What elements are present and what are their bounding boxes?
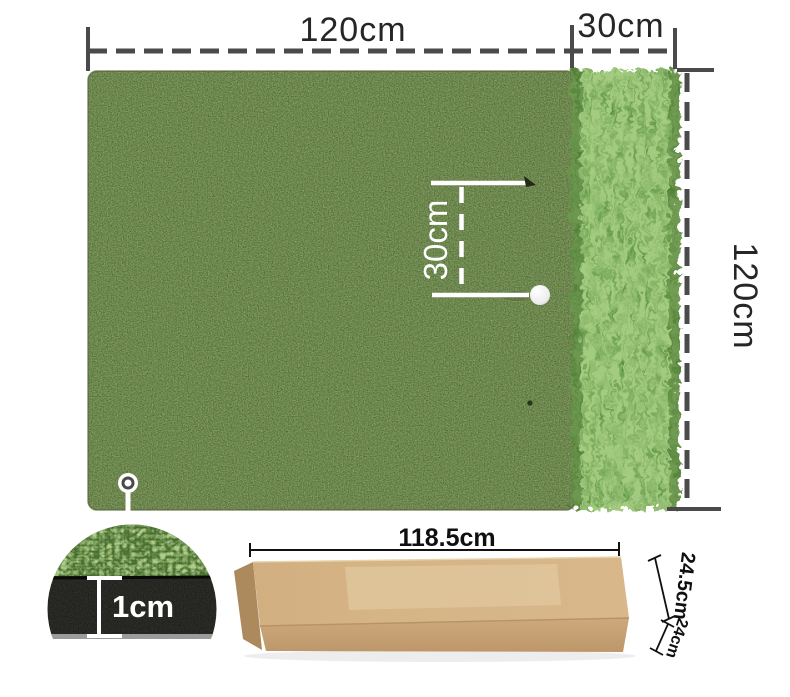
- mat-texture-light: [88, 71, 575, 510]
- product-diagram: 120cm 30cm 120cm 30cm 1cm 118.5cm 24.5cm…: [0, 0, 790, 697]
- mat-graphic: [88, 71, 575, 510]
- rough-strip-graphic: [568, 66, 676, 506]
- box-height-tick-top: [648, 555, 661, 561]
- closeup-cutoff: [42, 639, 224, 697]
- thickness-closeup: [42, 520, 224, 697]
- closeup-bottom-edge: [42, 634, 224, 639]
- box-top-panel: [345, 564, 561, 610]
- closeup-rubber-texture: [42, 576, 224, 636]
- golf-ball: [530, 285, 550, 305]
- rough-right-shade: [666, 66, 676, 506]
- top-dimension-lines: [88, 25, 676, 71]
- rough-left-shade: [568, 66, 578, 506]
- tee-hole-dot: [527, 400, 532, 405]
- closeup-grass-texture-light: [42, 520, 224, 580]
- closeup-seam: [42, 577, 224, 578]
- box-depth-line: [656, 624, 668, 651]
- shipping-box-graphic: [234, 557, 636, 662]
- rough-texture-light: [568, 66, 676, 506]
- callout-ring-icon: [123, 478, 133, 488]
- diagram-graphics: [0, 0, 790, 697]
- box-height-line: [655, 558, 669, 619]
